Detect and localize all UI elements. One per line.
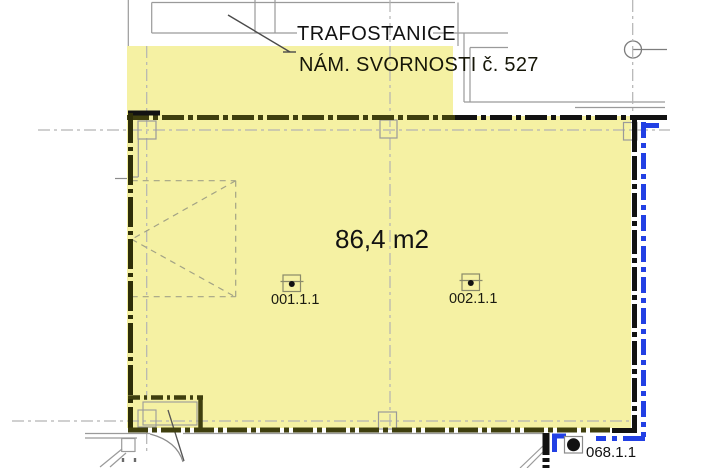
device-label-001: 001.1.1: [271, 293, 319, 308]
construction-lines-bottom: [85, 434, 543, 468]
address-label: NÁM. SVORNOSTI č. 527: [299, 55, 539, 75]
trafostanice-label: TRAFOSTANICE: [297, 24, 456, 44]
junction-box-symbol: [565, 437, 583, 454]
room-highlight-area: [127, 116, 631, 428]
adjacent-room-label: 068.1.1: [586, 445, 636, 460]
grid-bubble-icon: [625, 41, 668, 58]
device-label-002: 002.1.1: [449, 292, 497, 307]
room-area-label: 86,4 m2: [335, 226, 429, 252]
floor-plan-canvas: TRAFOSTANICE NÁM. SVORNOSTI č. 527 86,4 …: [0, 0, 726, 468]
